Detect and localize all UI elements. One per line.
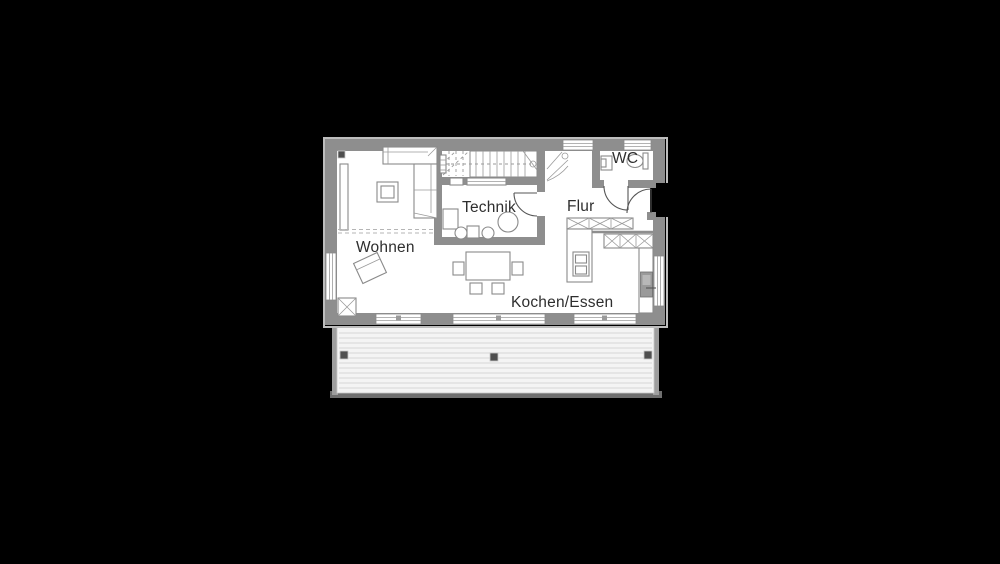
window-bottom-dining xyxy=(453,314,545,324)
sideboard xyxy=(340,164,348,230)
window-right-kitchen xyxy=(654,256,664,306)
utility-box xyxy=(467,226,479,238)
label-wohnen: Wohnen xyxy=(356,239,415,256)
terrace-post xyxy=(644,351,652,359)
window-bottom-kitchen xyxy=(574,314,636,324)
floor-plan-drawing: Wohnen Technik Flur WC Kochen/Essen xyxy=(0,0,1000,564)
dining-chair xyxy=(453,262,464,275)
kitchen-counter-right xyxy=(639,248,656,313)
dining-chair xyxy=(492,283,504,294)
washing-machine xyxy=(443,209,458,229)
floor-plan-canvas: Wohnen Technik Flur WC Kochen/Essen xyxy=(0,0,1000,564)
label-flur: Flur xyxy=(567,198,595,215)
structural-post xyxy=(338,151,345,158)
stair-flight-main xyxy=(470,151,537,177)
coffee-table xyxy=(377,182,398,202)
tall-cabinet-row xyxy=(604,234,653,248)
utility-drum xyxy=(482,227,494,239)
dining-chair xyxy=(512,262,523,275)
window-top-wc xyxy=(624,140,651,150)
terrace-post xyxy=(340,351,348,359)
kitchen-counter-left xyxy=(567,229,592,282)
wc-sink xyxy=(601,156,612,170)
terrace xyxy=(330,327,662,398)
fireplace xyxy=(338,298,356,316)
window-left-wohnen xyxy=(326,253,336,300)
dining-table xyxy=(466,252,510,280)
label-kochen-essen: Kochen/Essen xyxy=(511,294,613,311)
dining-chair xyxy=(470,283,482,294)
window-top-flur xyxy=(563,140,593,150)
understairs-shelf xyxy=(450,178,463,185)
terrace-post xyxy=(490,353,498,361)
label-technik: Technik xyxy=(462,199,516,216)
window-bottom-wohnen xyxy=(376,314,421,324)
upper-cabinet-row xyxy=(567,218,633,229)
label-wc: WC xyxy=(612,150,638,167)
utility-drum xyxy=(455,227,467,239)
